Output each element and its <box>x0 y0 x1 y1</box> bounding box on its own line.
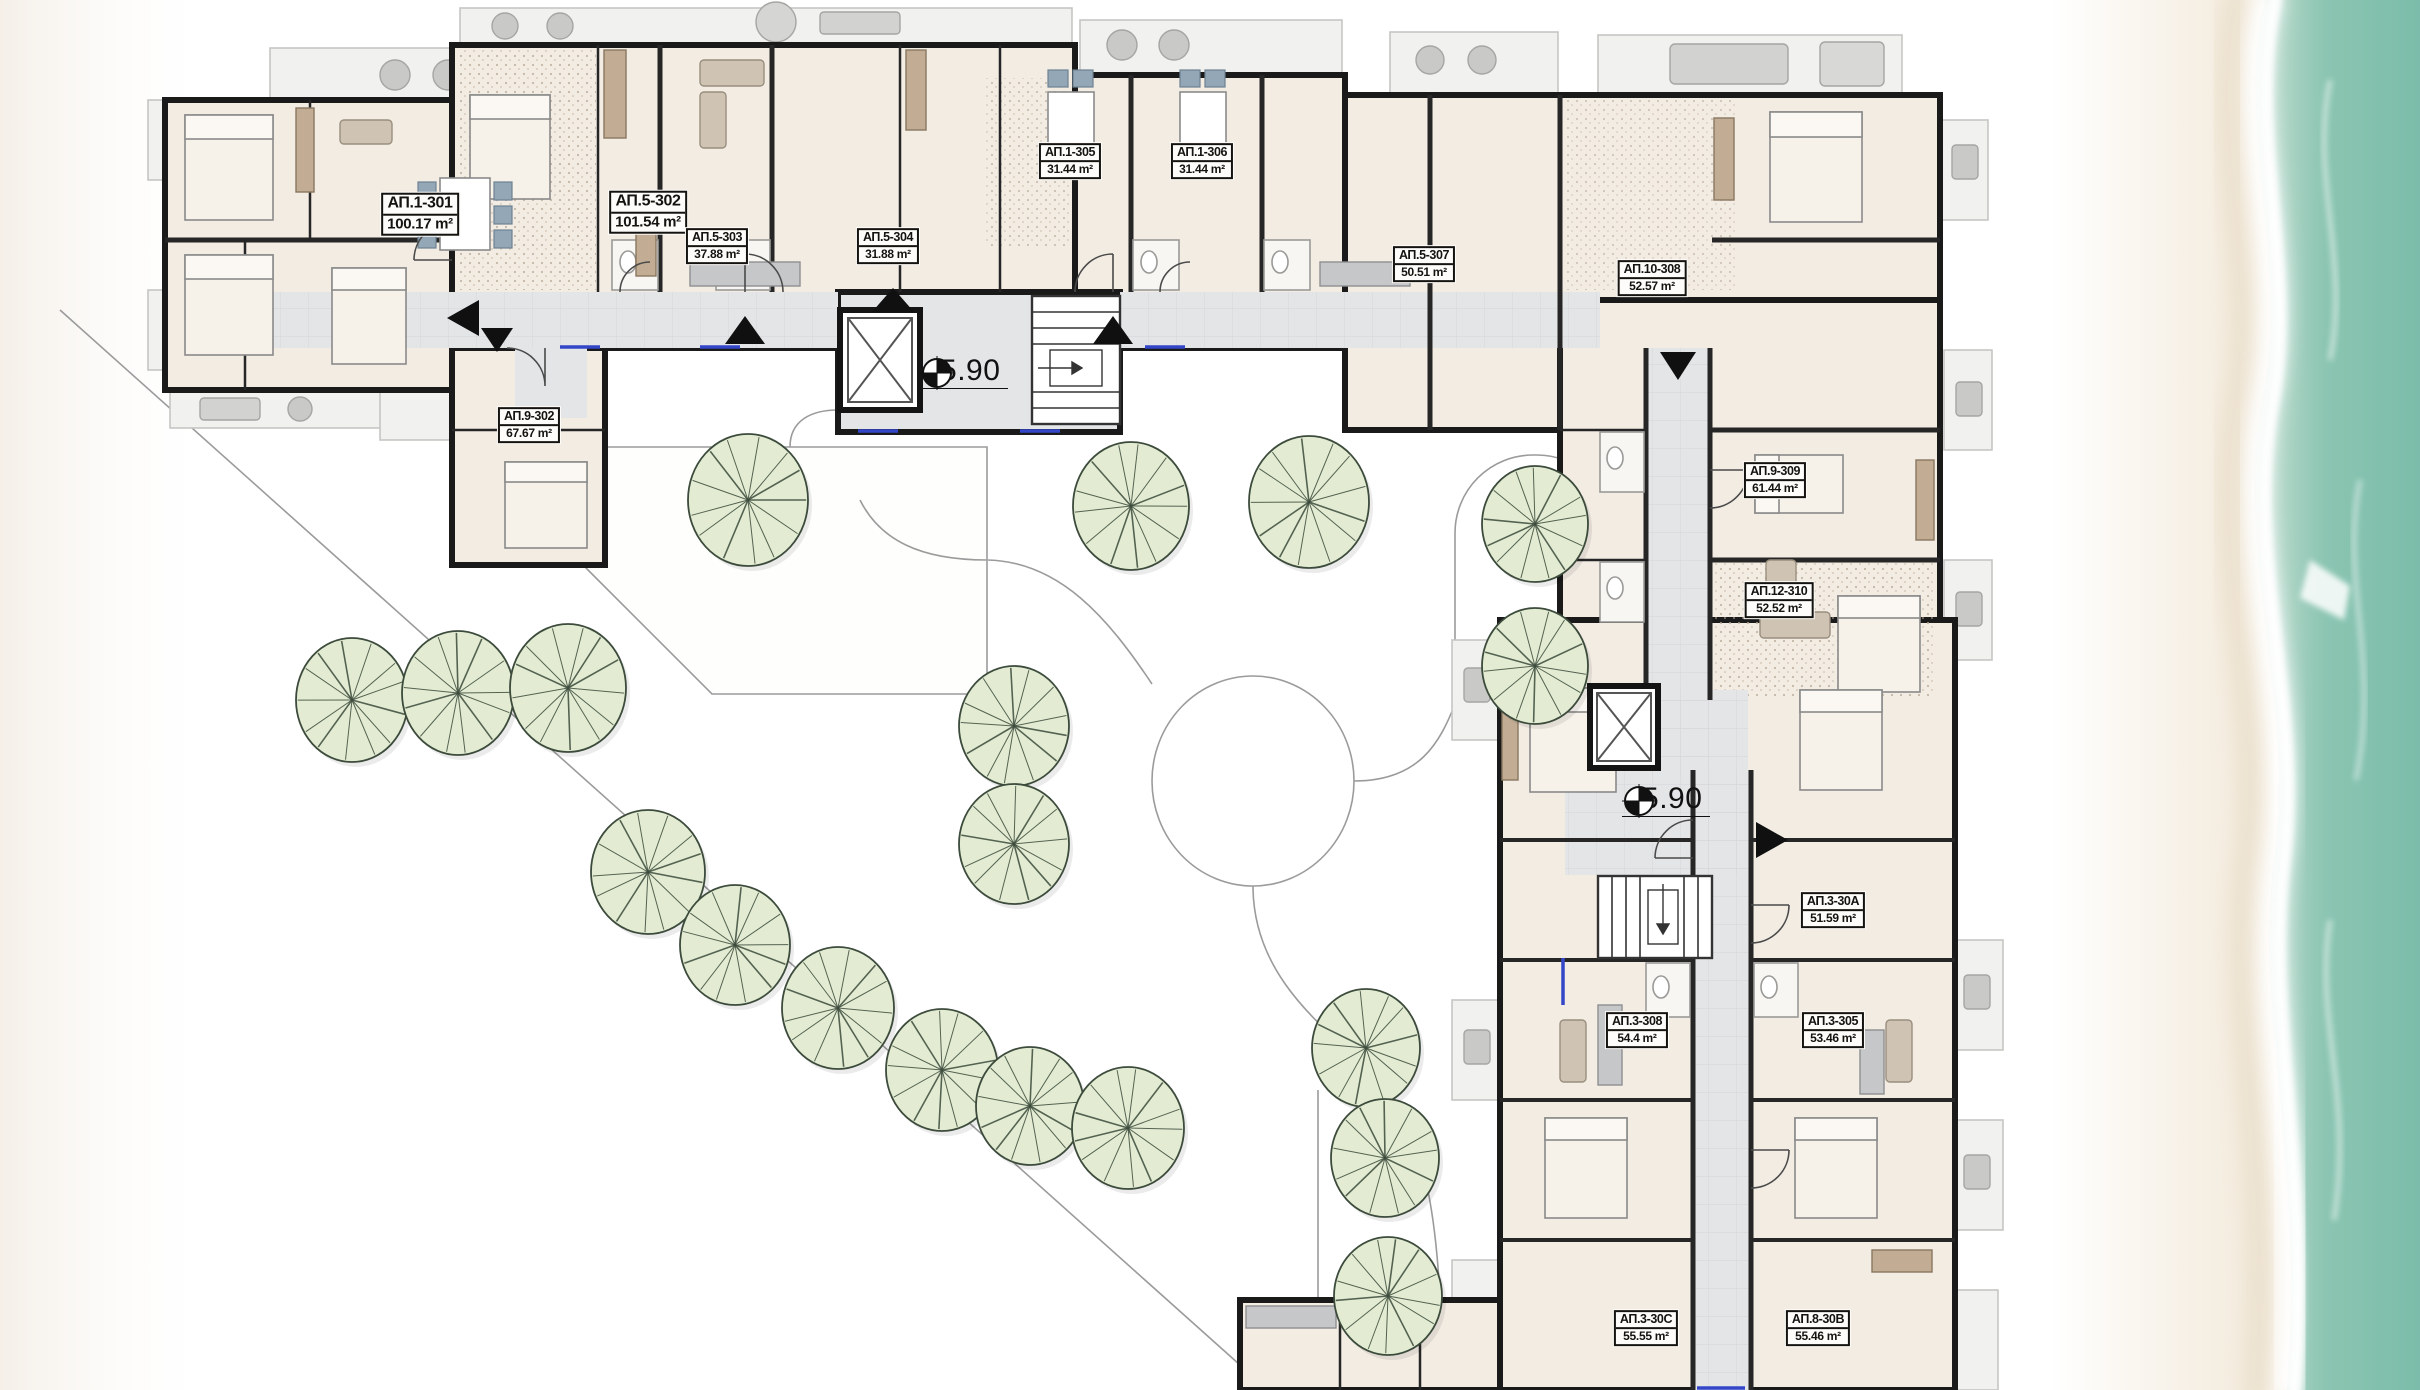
tree <box>959 666 1073 791</box>
elevator-core-1 <box>840 310 920 410</box>
beach <box>2050 0 2420 1390</box>
tree <box>680 885 794 1010</box>
site-plan-drawing <box>0 0 2420 1390</box>
tree <box>1331 1099 1443 1222</box>
tree <box>782 947 898 1074</box>
tree <box>959 784 1073 909</box>
tree <box>510 624 630 757</box>
tree <box>1073 442 1193 575</box>
tree <box>402 631 518 760</box>
elevator-core-2 <box>1590 686 1658 768</box>
tree <box>976 1047 1088 1170</box>
tree <box>1072 1067 1188 1194</box>
garden-paths <box>60 310 1690 1390</box>
tree <box>296 638 412 767</box>
floor-plan: АП.1-301100.17 m²АП.5-302101.54 m²АП.5-3… <box>0 0 2420 1390</box>
tree <box>1312 989 1424 1112</box>
staircase-2 <box>1598 876 1712 958</box>
tree <box>1249 436 1373 573</box>
staircase-1 <box>1032 296 1120 424</box>
